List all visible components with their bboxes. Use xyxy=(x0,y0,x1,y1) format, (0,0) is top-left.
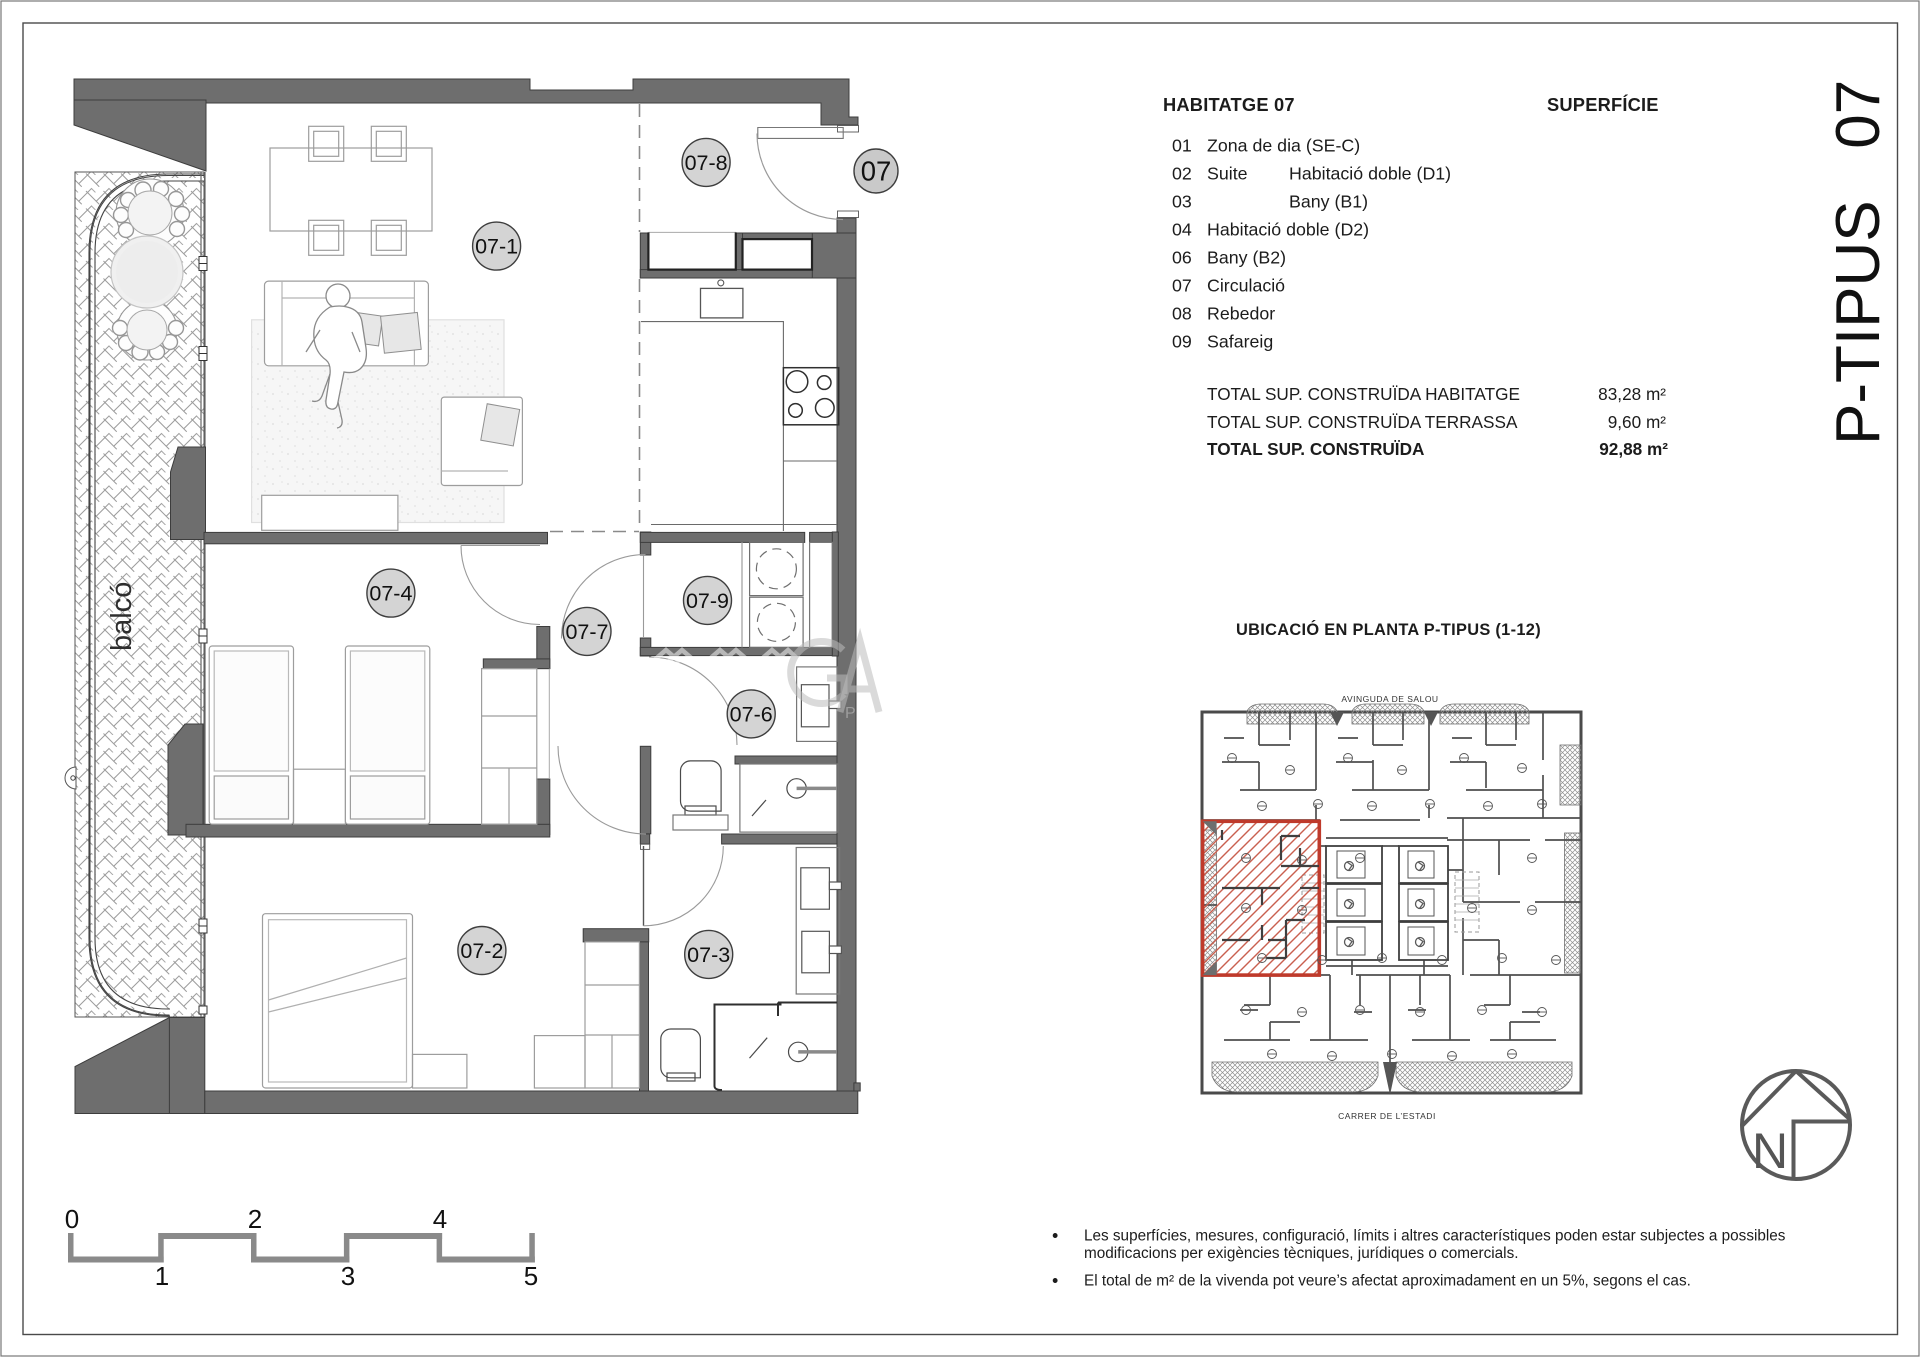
svg-text:1: 1 xyxy=(155,1261,169,1291)
svg-text:08: 08 xyxy=(1172,304,1192,324)
svg-text:El total de m² de la vivenda p: El total de m² de la vivenda pot veure’s… xyxy=(1084,1273,1691,1290)
svg-text:N: N xyxy=(1752,1123,1788,1179)
svg-text:07: 07 xyxy=(1172,276,1192,296)
svg-text:07-2: 07-2 xyxy=(460,939,503,963)
svg-text:04: 04 xyxy=(1172,220,1192,240)
svg-text:SUPERFÍCIE: SUPERFÍCIE xyxy=(1547,94,1659,115)
svg-text:4: 4 xyxy=(433,1204,447,1234)
svg-text:92,88 m²: 92,88 m² xyxy=(1599,439,1668,459)
svg-text:07-9: 07-9 xyxy=(686,589,729,613)
svg-text:Bany (B1): Bany (B1) xyxy=(1289,192,1368,212)
svg-text:3: 3 xyxy=(341,1261,355,1291)
svg-text:Rebedor: Rebedor xyxy=(1207,304,1275,324)
svg-text:TOTAL SUP. CONSTRUÏDA HABITATG: TOTAL SUP. CONSTRUÏDA HABITATGE xyxy=(1207,384,1520,404)
svg-text:Suite: Suite xyxy=(1207,164,1248,184)
svg-text:07-4: 07-4 xyxy=(369,582,412,606)
svg-text:AVINGUDA DE SALOU: AVINGUDA DE SALOU xyxy=(1341,694,1438,704)
svg-text:07-8: 07-8 xyxy=(685,151,728,175)
svg-text:Habitació doble (D2): Habitació doble (D2) xyxy=(1207,220,1369,240)
svg-text:03: 03 xyxy=(1172,192,1192,212)
svg-text:P: P xyxy=(845,705,856,722)
svg-text:9,60 m²: 9,60 m² xyxy=(1608,412,1667,432)
svg-text:0: 0 xyxy=(65,1204,79,1234)
svg-text:09: 09 xyxy=(1172,332,1192,352)
svg-text:HABITATGE 07: HABITATGE 07 xyxy=(1163,94,1295,115)
svg-text:CARRER DE L’ESTADI: CARRER DE L’ESTADI xyxy=(1338,1111,1436,1121)
svg-text:83,28 m²: 83,28 m² xyxy=(1598,384,1666,404)
svg-text:balcó: balcó xyxy=(106,582,138,651)
svg-text:•: • xyxy=(1052,1226,1058,1246)
svg-text:P-TIPUS 07: P-TIPUS 07 xyxy=(1824,80,1893,445)
svg-text:Habitació doble (D1): Habitació doble (D1) xyxy=(1289,164,1451,184)
svg-text:Safareig: Safareig xyxy=(1207,332,1273,352)
svg-text:2: 2 xyxy=(248,1204,262,1234)
svg-text:•: • xyxy=(1052,1271,1058,1291)
svg-text:06: 06 xyxy=(1172,248,1192,268)
svg-text:Les superfícies, mesures, conf: Les superfícies, mesures, configuració, … xyxy=(1084,1228,1786,1245)
svg-text:Circulació: Circulació xyxy=(1207,276,1285,296)
svg-text:01: 01 xyxy=(1172,136,1192,156)
svg-text:UBICACIÓ EN PLANTA P-TIPUS (1-: UBICACIÓ EN PLANTA P-TIPUS (1-12) xyxy=(1236,620,1541,639)
svg-text:07-7: 07-7 xyxy=(565,620,608,644)
svg-text:TOTAL SUP. CONSTRUÏDA TERRASSA: TOTAL SUP. CONSTRUÏDA TERRASSA xyxy=(1207,412,1518,432)
svg-text:07-3: 07-3 xyxy=(687,943,730,967)
svg-text:07-6: 07-6 xyxy=(730,702,773,726)
svg-text:Bany (B2): Bany (B2) xyxy=(1207,248,1286,268)
svg-text:Zona de dia (SE-C): Zona de dia (SE-C) xyxy=(1207,136,1360,156)
svg-text:07-1: 07-1 xyxy=(475,235,518,259)
svg-text:07: 07 xyxy=(861,156,892,187)
svg-text:modificacions per exigències t: modificacions per exigències tècniques, … xyxy=(1084,1245,1518,1262)
svg-text:02: 02 xyxy=(1172,164,1192,184)
svg-text:5: 5 xyxy=(524,1261,538,1291)
svg-text:TOTAL SUP. CONSTRUÏDA: TOTAL SUP. CONSTRUÏDA xyxy=(1207,439,1424,459)
